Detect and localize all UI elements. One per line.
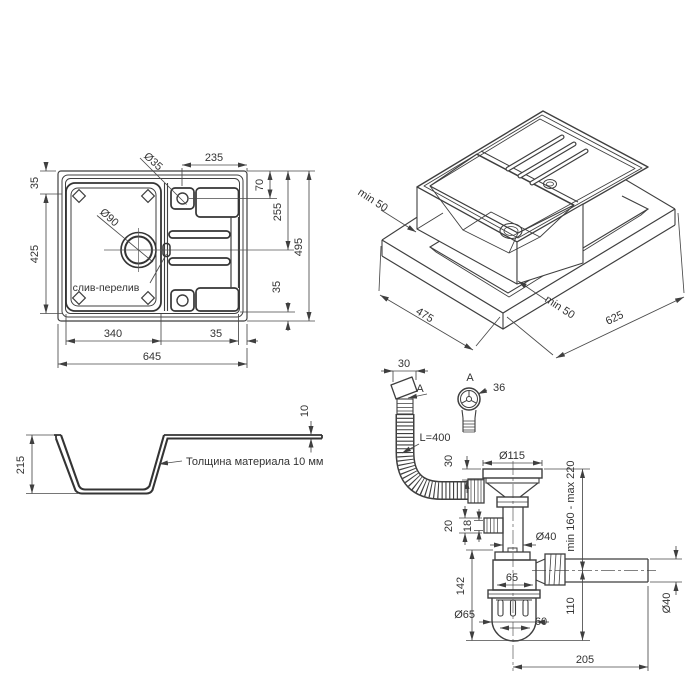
dim-margin-bottom: 35 (271, 281, 283, 293)
dim-bowl-width: 340 (104, 328, 122, 340)
detail-mark-label: A (466, 372, 474, 384)
top-view: 235 Ø35 35 425 70 255 495 35 Ø90 слив-пе… (29, 150, 315, 368)
drainboard (169, 188, 239, 311)
top-view-dimensions (40, 158, 315, 368)
iso-view: min 50 min 50 475 625 (356, 111, 684, 358)
iso-sink (417, 111, 648, 284)
overflow-label: слив-перелив (73, 282, 140, 294)
outlet-pipe (536, 554, 648, 585)
section-mark-label: A (416, 383, 424, 395)
dim-cup-inner: 60 (535, 616, 547, 628)
dim-tap-hole: Ø35 (141, 150, 164, 173)
material-note: Толщина материала 10 мм (186, 456, 323, 468)
dim-outlet-dia: Ø40 (661, 593, 673, 614)
drain-flange (483, 469, 542, 552)
dim-port-inner: 18 (462, 520, 474, 532)
corrugated-hose (405, 414, 468, 491)
dim-cutout-width: 475 (414, 306, 436, 326)
dim-total-height: 495 (293, 238, 305, 256)
side-port (484, 518, 503, 533)
dim-tap-offset: 70 (254, 179, 266, 191)
hose-nut (468, 479, 484, 503)
dim-outlet-height: 110 (565, 597, 577, 615)
drain-dimensions (381, 371, 682, 671)
dim-gap-right: 35 (210, 328, 222, 340)
dim-outlet-length: 205 (576, 654, 594, 666)
overflow-connector (391, 377, 417, 414)
dim-overhang-left: min 50 (356, 186, 390, 214)
dim-cutout-length: 625 (604, 309, 626, 328)
dim-total-width: 645 (143, 351, 161, 363)
dim-flange-height: 30 (443, 455, 455, 467)
sink-technical-drawing: 235 Ø35 35 425 70 255 495 35 Ø90 слив-пе… (0, 0, 700, 700)
dim-cup-dia: Ø65 (454, 609, 475, 621)
dim-detail-dia: 36 (493, 382, 505, 394)
overflow-grate-detail (458, 388, 480, 432)
dim-flange-dia: Ø115 (499, 450, 525, 462)
dim-body-height: 142 (455, 577, 467, 595)
dim-drain-hole: Ø90 (97, 206, 120, 229)
dim-overflow-width: 30 (398, 358, 410, 370)
dim-depth: 215 (15, 456, 27, 474)
dim-hose-length: L=400 (420, 432, 451, 444)
dim-port-outer: 20 (443, 520, 455, 532)
dim-height-range: min 160 - max 220 (565, 460, 577, 551)
dim-margin-top: 35 (29, 177, 41, 189)
dim-bowl-height: 425 (29, 245, 41, 263)
technical-drawing-page: 235 Ø35 35 425 70 255 495 35 Ø90 слив-пе… (0, 0, 700, 700)
dim-drain-offset: 255 (272, 203, 284, 221)
dim-overhang-right: min 50 (543, 293, 577, 321)
section-view: 215 10 Толщина материала 10 мм (15, 405, 323, 494)
drain-assembly-view: 30 A A 36 L=400 30 Ø115 min 160 - max 22… (381, 358, 682, 671)
dim-thickness: 10 (299, 405, 311, 417)
dim-drainboard-width: 235 (205, 152, 223, 164)
dim-body-width: 65 (506, 572, 518, 584)
dim-pipe-dia: Ø40 (536, 531, 557, 543)
siphon-body (488, 548, 540, 641)
